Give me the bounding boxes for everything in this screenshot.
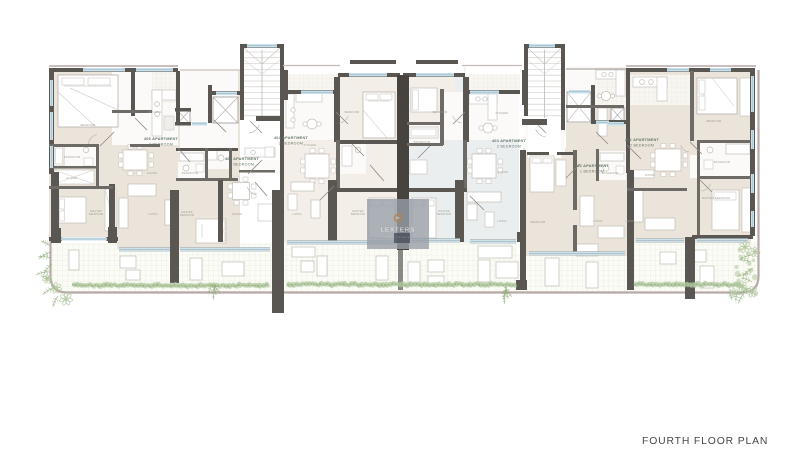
svg-text:2 BEDROOM: 2 BEDROOM [497, 145, 521, 149]
svg-text:BEDROOM: BEDROOM [81, 123, 96, 127]
svg-text:DINING: DINING [645, 173, 655, 177]
svg-text:BATHROOM: BATHROOM [182, 171, 198, 175]
svg-text:405 APARTMENT: 405 APARTMENT [225, 156, 260, 161]
svg-text:406 APARTMENT: 406 APARTMENT [144, 136, 179, 141]
svg-text:2 BEDROOM: 2 BEDROOM [279, 142, 303, 146]
svg-text:REAL ESTATE: REAL ESTATE [386, 236, 410, 239]
svg-text:KITCHEN: KITCHEN [149, 110, 162, 114]
svg-text:FOURTH FLOOR PLAN: FOURTH FLOOR PLAN [642, 436, 768, 447]
svg-text:LIVING: LIVING [497, 219, 507, 223]
svg-text:BATHROOM: BATHROOM [414, 140, 430, 144]
svg-text:DINING: DINING [232, 212, 242, 216]
svg-text:BEDROOM: BEDROOM [345, 110, 360, 114]
svg-text:LIVING: LIVING [292, 212, 302, 216]
svg-text:BEDROOM: BEDROOM [351, 213, 365, 216]
svg-text:BEDROOM: BEDROOM [433, 110, 448, 114]
svg-text:DINING: DINING [147, 171, 157, 175]
svg-text:404 APARTMENT: 404 APARTMENT [274, 135, 309, 140]
svg-text:LIVING: LIVING [625, 219, 635, 223]
svg-text:2 BEDROOM: 2 BEDROOM [149, 143, 173, 147]
svg-text:BATHROOM: BATHROOM [602, 171, 618, 175]
svg-text:401 APARTMENT: 401 APARTMENT [625, 137, 660, 142]
svg-text:403 APARTMENT: 403 APARTMENT [492, 138, 527, 143]
svg-text:BEDROOM: BEDROOM [180, 214, 194, 217]
svg-text:LEXTERS: LEXTERS [381, 228, 416, 234]
svg-text:LIVING: LIVING [148, 212, 158, 216]
svg-text:DINING: DINING [498, 170, 508, 174]
svg-text:BEDROOM: BEDROOM [531, 220, 546, 224]
svg-text:BEDROOM: BEDROOM [707, 119, 722, 123]
svg-text:KITCHEN: KITCHEN [304, 143, 317, 147]
svg-text:2 BEDROOM: 2 BEDROOM [630, 144, 654, 148]
svg-text:1 BEDROOM: 1 BEDROOM [230, 163, 254, 167]
svg-text:CLOSET: CLOSET [66, 176, 78, 180]
svg-text:KITCHEN: KITCHEN [496, 111, 509, 115]
svg-text:BATHROOM: BATHROOM [714, 160, 730, 164]
svg-text:LIVING: LIVING [593, 219, 603, 223]
svg-text:1 BEDROOM: 1 BEDROOM [580, 170, 604, 174]
svg-text:MASTER BEDROOM: MASTER BEDROOM [702, 196, 730, 200]
svg-text:BEDROOM: BEDROOM [89, 213, 103, 216]
svg-text:402 APARTMENT: 402 APARTMENT [575, 163, 610, 168]
svg-text:BATHROOM: BATHROOM [64, 155, 80, 159]
svg-text:BEDROOM: BEDROOM [437, 213, 451, 216]
